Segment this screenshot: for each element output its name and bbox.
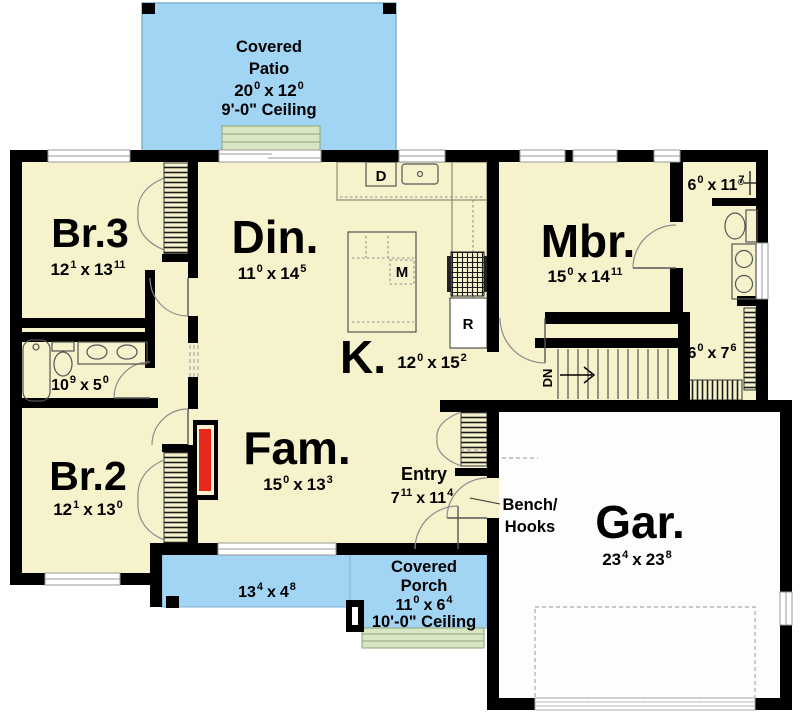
dim-sep: x bbox=[578, 267, 588, 286]
refrigerator-icon bbox=[451, 252, 484, 296]
wic-rod-right bbox=[744, 308, 756, 390]
dim-a: 12 bbox=[53, 500, 72, 519]
stairs-down-label: DN bbox=[540, 369, 555, 388]
dim-sep: x bbox=[267, 264, 277, 283]
floor-plan: Covered Patio 200x120 9'-0" Ceiling Br.3… bbox=[0, 0, 800, 718]
wall-segment bbox=[10, 398, 158, 408]
dim-a: 11 bbox=[396, 597, 413, 614]
room-dim-din: 110x145 bbox=[238, 263, 307, 283]
dim-b-sup: 6 bbox=[730, 342, 736, 354]
porch-label-line2: Porch bbox=[401, 577, 448, 595]
dim-sep: x bbox=[83, 500, 93, 519]
dim-b: 13 bbox=[94, 260, 113, 279]
dim-b: 13 bbox=[97, 500, 116, 519]
wall-segment bbox=[487, 412, 499, 478]
dim-b-sup: 11 bbox=[114, 259, 126, 271]
patio-ceiling-label: 9'-0" Ceiling bbox=[221, 101, 316, 119]
dim-a: 10 bbox=[51, 377, 69, 394]
porch-post bbox=[166, 596, 179, 608]
wall-segment bbox=[188, 316, 198, 343]
dim-b: 6 bbox=[436, 597, 445, 614]
wall-segment bbox=[780, 400, 792, 710]
porch-ceiling-label: 10'-0" Ceiling bbox=[372, 613, 476, 631]
dim-a-sup: 1 bbox=[70, 259, 76, 271]
garage-overhead-door bbox=[535, 698, 755, 710]
dim-b: 14 bbox=[280, 264, 299, 283]
wall-segment bbox=[162, 254, 188, 262]
dim-b: 23 bbox=[646, 550, 665, 569]
dim-b: 5 bbox=[93, 377, 102, 394]
wall-segment bbox=[670, 268, 683, 312]
entry-closet-rod bbox=[461, 412, 487, 466]
room-label-entry: Entry bbox=[401, 464, 447, 484]
dim-a-sup: 11 bbox=[401, 487, 413, 499]
dim-a: 12 bbox=[50, 260, 69, 279]
wall-segment bbox=[440, 400, 792, 412]
dim-a: 15 bbox=[547, 267, 566, 286]
dim-b: 7 bbox=[720, 345, 729, 362]
dim-a-sup: 0 bbox=[697, 342, 703, 354]
room-dim-hallbath: 109x50 bbox=[51, 374, 109, 394]
dim-a: 20 bbox=[234, 81, 253, 100]
dim-b-sup: 0 bbox=[117, 499, 123, 511]
dim-a-sup: 0 bbox=[283, 474, 289, 486]
patio-label-line1: Covered bbox=[236, 38, 302, 56]
dim-a: 7 bbox=[391, 490, 400, 507]
range-label: R bbox=[463, 316, 474, 333]
room-label-mbr: Mbr. bbox=[541, 215, 636, 267]
wall-segment bbox=[188, 162, 198, 278]
dim-a: 6 bbox=[688, 177, 697, 194]
dim-sep: x bbox=[708, 345, 717, 362]
sliding-glass-door bbox=[219, 150, 321, 162]
room-label-gar: Gar. bbox=[595, 496, 685, 548]
dim-a: 23 bbox=[602, 550, 621, 569]
wall-segment bbox=[10, 150, 22, 585]
porch-left-dim: 134x48 bbox=[238, 581, 296, 601]
room-dim-br2: 121x130 bbox=[53, 499, 123, 519]
dim-sep: x bbox=[80, 377, 89, 394]
room-dim-gar: 234x238 bbox=[602, 549, 672, 569]
porch-label-line1: Covered bbox=[391, 558, 457, 576]
room-label-fam: Fam. bbox=[243, 422, 350, 474]
dim-b-sup: 4 bbox=[447, 487, 454, 499]
dim-a: 15 bbox=[263, 475, 282, 494]
dim-a-sup: 0 bbox=[697, 174, 703, 186]
floor-plan-page: Covered Patio 200x120 9'-0" Ceiling Br.3… bbox=[0, 0, 800, 718]
room-label-din: Din. bbox=[232, 211, 319, 263]
dim-a-sup: 4 bbox=[257, 581, 264, 593]
dim-a-sup: 0 bbox=[413, 594, 419, 606]
wall-segment bbox=[535, 338, 682, 348]
dim-a-sup: 0 bbox=[254, 80, 260, 92]
room-label-br3: Br.3 bbox=[51, 210, 129, 256]
covered-patio bbox=[142, 3, 396, 153]
room-dim-fam: 150x133 bbox=[263, 474, 333, 494]
wic-rod-bottom bbox=[684, 380, 742, 400]
dim-b-sup: 0 bbox=[103, 374, 109, 386]
dim-a-sup: 0 bbox=[257, 263, 263, 275]
bench-label-line2: Hooks bbox=[505, 518, 555, 536]
dim-a: 12 bbox=[397, 353, 416, 372]
dim-sep: x bbox=[427, 353, 437, 372]
dim-b: 11 bbox=[429, 490, 446, 507]
room-label-kitchen: K. bbox=[340, 331, 386, 383]
wall-segment bbox=[487, 518, 499, 710]
wall-segment bbox=[487, 162, 499, 352]
dim-sep: x bbox=[632, 550, 642, 569]
dim-a: 11 bbox=[238, 264, 256, 283]
microwave-label: M bbox=[396, 264, 409, 281]
patio-post bbox=[383, 3, 396, 14]
dim-sep: x bbox=[264, 81, 274, 100]
wall-segment bbox=[670, 162, 683, 222]
dim-b-sup: 11 bbox=[611, 266, 623, 278]
dim-sep: x bbox=[267, 584, 276, 601]
porch-column-slot bbox=[352, 607, 358, 625]
porch-area-left bbox=[162, 553, 350, 607]
dim-a-sup: 4 bbox=[622, 549, 629, 561]
floor-upper bbox=[10, 150, 768, 400]
wall-segment bbox=[10, 318, 150, 328]
patio-label-line2: Patio bbox=[249, 60, 289, 78]
wall-segment bbox=[712, 198, 756, 206]
room-dim-kitchen: 120x152 bbox=[397, 352, 467, 372]
room-dim-mbath: 60x117 bbox=[688, 174, 745, 194]
dim-b-sup: 8 bbox=[666, 549, 672, 561]
dim-sep: x bbox=[708, 177, 717, 194]
dim-a-sup: 1 bbox=[73, 499, 79, 511]
room-label-br2: Br.2 bbox=[49, 453, 127, 499]
patio-dimensions: 200x120 bbox=[234, 80, 304, 100]
dim-b-sup: 2 bbox=[461, 352, 467, 364]
room-dim-wic: 60x76 bbox=[688, 342, 737, 362]
dim-a-sup: 0 bbox=[567, 266, 573, 278]
dim-a-sup: 0 bbox=[417, 352, 423, 364]
dim-b: 13 bbox=[307, 475, 326, 494]
patio-steps bbox=[222, 126, 320, 150]
dim-sep: x bbox=[81, 260, 91, 279]
wall-segment bbox=[162, 444, 188, 452]
dim-sep: x bbox=[424, 597, 433, 614]
dim-b-sup: 3 bbox=[327, 474, 333, 486]
dim-b: 12 bbox=[278, 81, 297, 100]
dim-a: 13 bbox=[238, 584, 256, 601]
fireplace-firebox bbox=[199, 429, 211, 491]
dim-sep: x bbox=[416, 490, 425, 507]
dim-b-sup: 5 bbox=[300, 263, 306, 275]
br3-closet-rod bbox=[164, 163, 188, 254]
patio-post bbox=[142, 3, 155, 14]
dim-b-sup: 7 bbox=[738, 174, 744, 186]
wall-segment bbox=[188, 377, 198, 409]
dim-b: 14 bbox=[591, 267, 610, 286]
dim-a-sup: 9 bbox=[70, 374, 76, 386]
dim-b-sup: 4 bbox=[446, 594, 453, 606]
porch-dimensions: 110x64 bbox=[396, 594, 454, 614]
fireplace bbox=[193, 420, 218, 500]
dim-b: 11 bbox=[720, 177, 737, 194]
dim-b-sup: 0 bbox=[298, 80, 304, 92]
dim-b: 4 bbox=[280, 584, 289, 601]
dim-sep: x bbox=[293, 475, 303, 494]
dim-b-sup: 8 bbox=[290, 581, 296, 593]
wall-segment bbox=[455, 468, 487, 476]
porch-steps bbox=[362, 628, 484, 648]
refrigerator-handle bbox=[447, 256, 451, 292]
dishwasher-label: D bbox=[376, 168, 387, 185]
wall-segment bbox=[545, 312, 682, 324]
dim-a: 6 bbox=[688, 345, 697, 362]
br2-closet-rod bbox=[164, 452, 188, 544]
dim-b: 15 bbox=[441, 353, 460, 372]
bench-label-line1: Bench/ bbox=[502, 496, 557, 514]
